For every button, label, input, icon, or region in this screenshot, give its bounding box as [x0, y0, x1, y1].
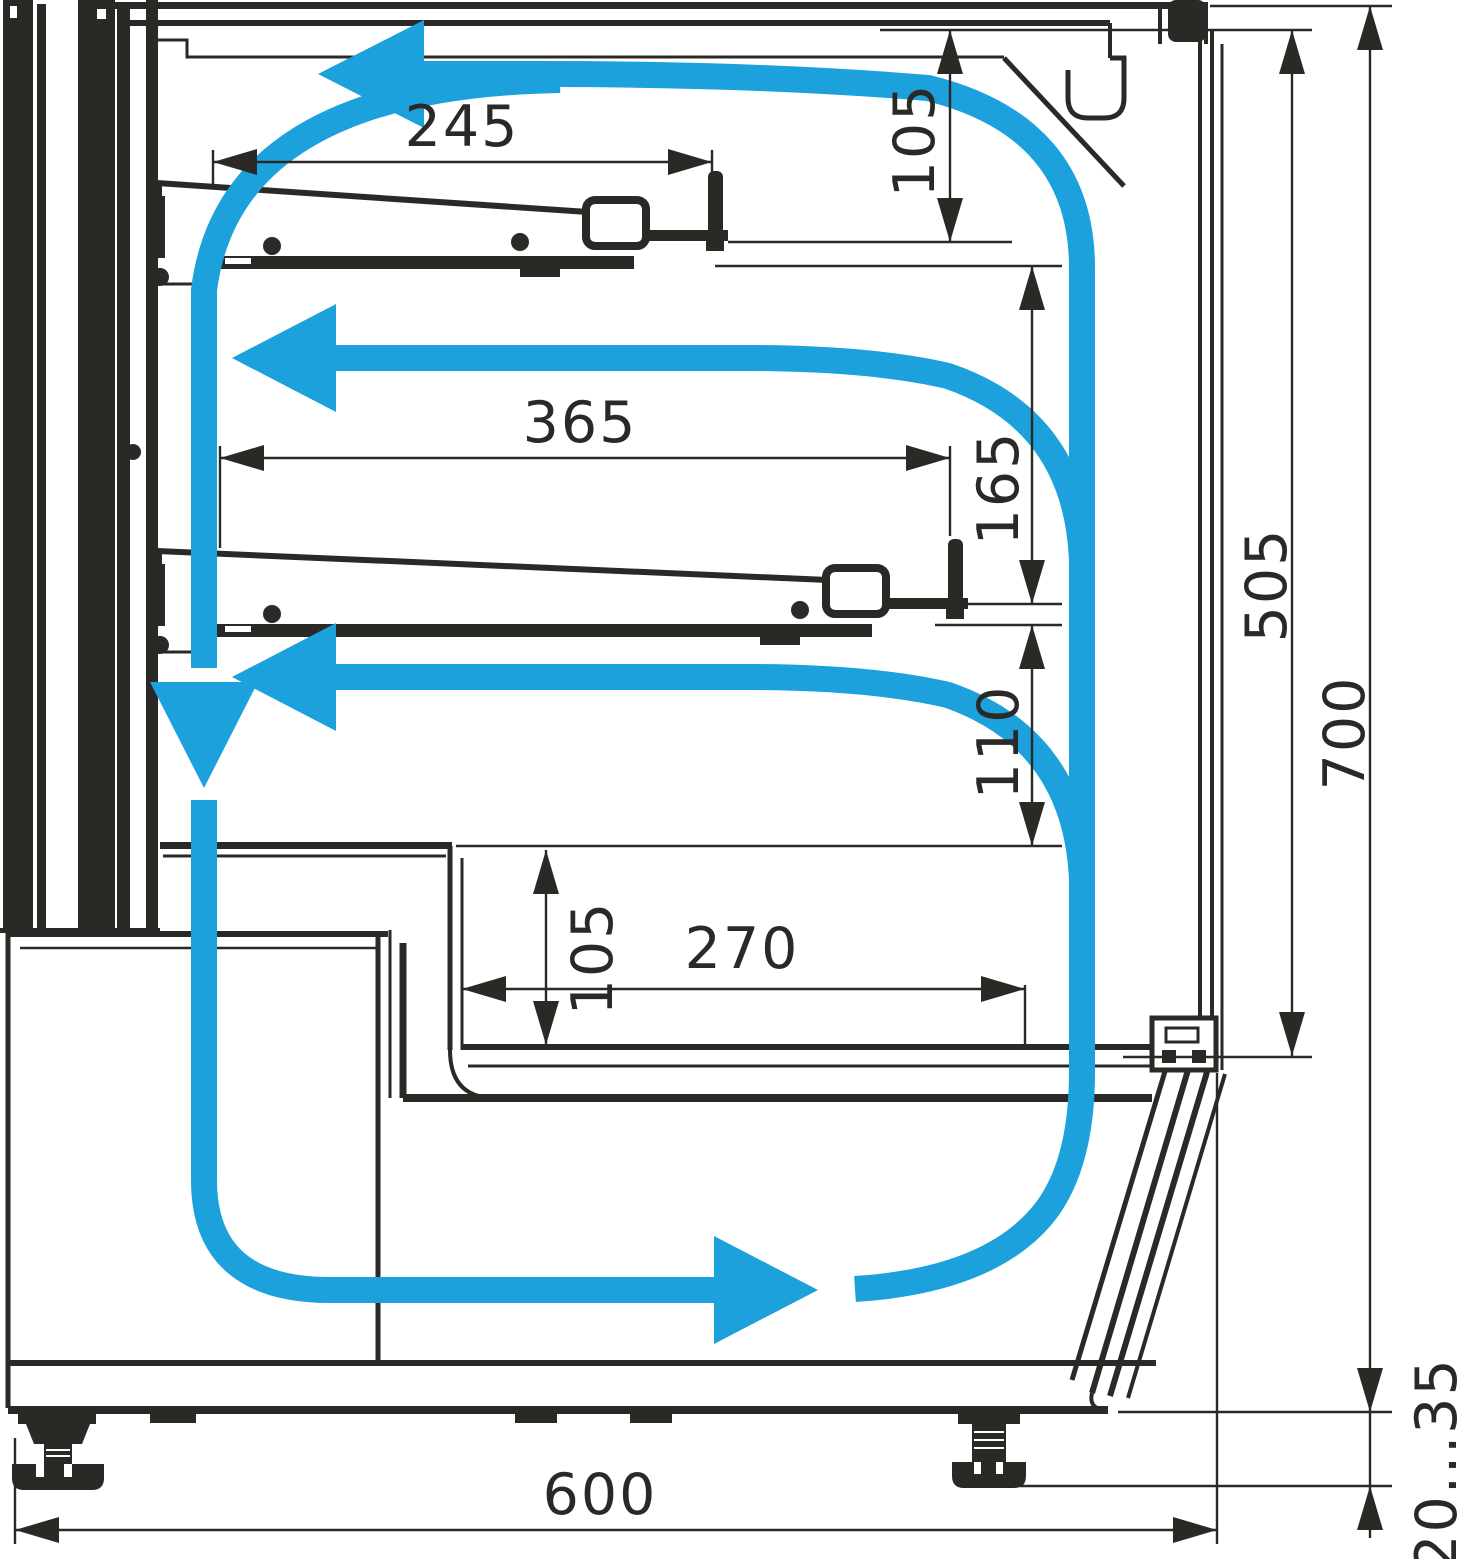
dim-label-245: 245 — [405, 94, 520, 160]
dim-label-505: 505 — [1234, 528, 1300, 643]
dim-label-20-35: 20...35 — [1404, 1357, 1468, 1559]
dim-middle-shelf-depth: 365 — [220, 390, 950, 548]
middle-shelf — [151, 539, 968, 654]
dim-overall-height: 700 — [1118, 6, 1392, 1412]
shelf-front-rail — [586, 200, 646, 246]
dim-label-700: 700 — [1312, 676, 1378, 791]
dim-label-165: 165 — [966, 431, 1032, 546]
dim-well-inner-height: 105 — [533, 850, 626, 1045]
dim-foot-height-range: 20...35 — [1020, 1357, 1468, 1559]
dim-label-365: 365 — [523, 390, 638, 456]
rear-downflow-upper — [204, 80, 560, 668]
technical-drawing-page: 245 105 365 165 110 105 270 — [0, 0, 1468, 1559]
bottom-duct-arrow — [714, 1236, 818, 1344]
right-adjustable-foot — [952, 1414, 1026, 1488]
well-deck — [403, 1047, 1152, 1098]
price-tag-post — [948, 539, 963, 603]
base — [8, 1360, 1156, 1423]
shelf-front-rail — [826, 568, 886, 614]
rear-duct-arrow — [150, 682, 258, 788]
dim-middle-to-well-gap: 110 — [456, 625, 1062, 846]
front-glass — [1152, 30, 1222, 1070]
front-bumper — [1072, 1068, 1225, 1410]
dim-label-105-top: 105 — [882, 83, 948, 198]
middle-level-arrow — [232, 623, 336, 731]
dim-label-105-well: 105 — [560, 901, 626, 1016]
shelf-wall-lug — [153, 196, 165, 258]
dim-label-270: 270 — [685, 916, 800, 982]
dim-label-600: 600 — [543, 1462, 658, 1528]
shelf-wall-lug — [153, 564, 165, 626]
glass-bottom-clamp — [1152, 1018, 1216, 1070]
lamp-channel-hook — [1068, 58, 1124, 118]
dim-front-glass-height: 505 — [1123, 30, 1312, 1057]
dim-label-110: 110 — [966, 685, 1032, 800]
upper-level-arrow — [232, 304, 336, 412]
left-adjustable-foot — [12, 1414, 104, 1490]
display-case-section-diagram: 245 105 365 165 110 105 270 — [0, 0, 1468, 1559]
price-tag-post — [708, 171, 723, 235]
back-wall — [0, 0, 160, 933]
dim-upper-to-middle-gap: 165 — [715, 266, 1062, 604]
